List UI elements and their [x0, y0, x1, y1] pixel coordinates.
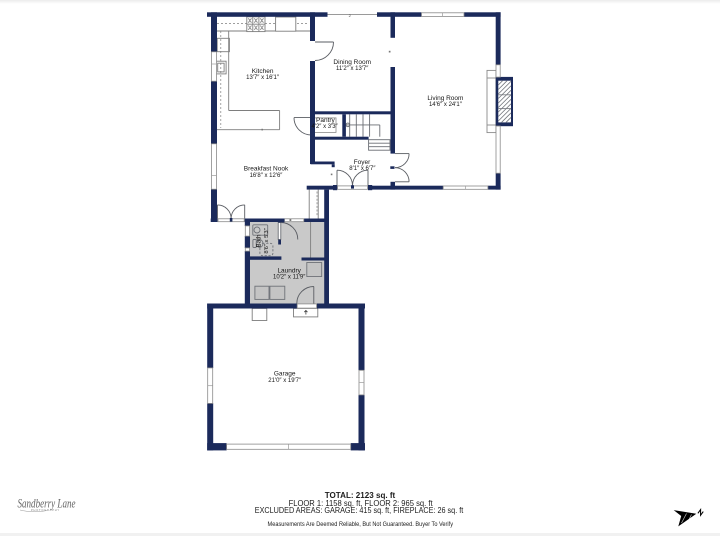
- svg-text:Measurements Are Deemed Reliab: Measurements Are Deemed Reliable, But No…: [268, 521, 454, 528]
- svg-text:8′1″ x 6′7″: 8′1″ x 6′7″: [349, 166, 376, 172]
- svg-text:14′6″ x 24′1″: 14′6″ x 24′1″: [429, 102, 463, 108]
- svg-text:EXCLUDED AREAS: GARAGE: 415 sq: EXCLUDED AREAS: GARAGE: 415 sq. ft, FIRE…: [255, 505, 464, 515]
- svg-text:8′6″ x 5′3″: 8′6″ x 5′3″: [264, 228, 270, 253]
- svg-text:Dining Room: Dining Room: [333, 59, 371, 66]
- svg-text:Bath: Bath: [256, 234, 263, 247]
- svg-text:Living Room: Living Room: [427, 95, 463, 102]
- svg-text:Pantry: Pantry: [316, 117, 336, 124]
- svg-text:PHOTOGRAPHY: PHOTOGRAPHY: [31, 508, 60, 512]
- svg-text:Garage: Garage: [274, 371, 296, 378]
- svg-text:11′2″ x 13′7″: 11′2″ x 13′7″: [336, 66, 369, 72]
- svg-text:Foyer: Foyer: [354, 159, 371, 166]
- svg-text:Laundry: Laundry: [277, 268, 301, 275]
- svg-text:13′7″ x 16′1″: 13′7″ x 16′1″: [246, 75, 280, 81]
- svg-text:Breakfast Nook: Breakfast Nook: [244, 166, 289, 173]
- svg-text:16′8″ x 12′6″: 16′8″ x 12′6″: [250, 173, 284, 179]
- svg-text:4′2″ x 3′3″: 4′2″ x 3′3″: [312, 124, 339, 130]
- svg-text:Kitchen: Kitchen: [252, 68, 274, 75]
- svg-text:21′0″ x 19′7″: 21′0″ x 19′7″: [268, 378, 302, 384]
- svg-text:10′2″ x 11′9″: 10′2″ x 11′9″: [273, 275, 306, 281]
